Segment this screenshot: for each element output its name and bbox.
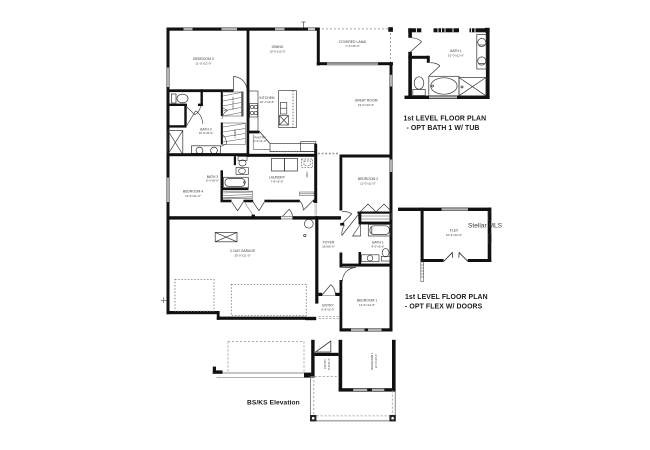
svg-text:BATH 1: BATH 1 [450, 49, 462, 53]
svg-text:16'0x5'-0": 16'0x5'-0" [322, 245, 335, 249]
svg-text:4'-0"x4'-0": 4'-0"x4'-0" [254, 139, 267, 143]
svg-text:7'-6"x5'-6": 7'-6"x5'-6" [271, 180, 284, 184]
svg-text:BEDROOM 3: BEDROOM 3 [193, 57, 213, 61]
svg-text:30'-0"x21'-0": 30'-0"x21'-0" [234, 254, 250, 258]
svg-text:DINING: DINING [272, 45, 284, 49]
svg-text:5'-0"x8'-0": 5'-0"x8'-0" [206, 179, 219, 183]
svg-text:BEDROOM 1: BEDROOM 1 [357, 299, 377, 303]
svg-text:3 CAR GARAGE: 3 CAR GARAGE [230, 249, 256, 253]
svg-text:6'-8"x5'-4": 6'-8"x5'-4" [327, 358, 331, 370]
svg-text:10'-6"x5'-0": 10'-6"x5'-0" [199, 131, 214, 135]
svg-text:ENTRY: ENTRY [323, 359, 327, 369]
svg-text:BEDROOM 1: BEDROOM 1 [370, 352, 374, 370]
svg-text:8'-0"x5'-0": 8'-0"x5'-0" [372, 245, 385, 249]
svg-text:11'-0"x11'-0": 11'-0"x11'-0" [185, 194, 201, 198]
svg-text:1st LEVEL FLOOR PLAN: 1st LEVEL FLOOR PLAN [404, 116, 487, 123]
svg-text:10'-0"x12'-0": 10'-0"x12'-0" [269, 50, 285, 54]
svg-text:LINEN: LINEN [233, 129, 237, 138]
svg-text:11'-0"x11'-0": 11'-0"x11'-0" [360, 182, 376, 186]
svg-text:- OPT BATH 1 W/ TUB: - OPT BATH 1 W/ TUB [407, 125, 480, 132]
svg-text:10'-0"x11'-6": 10'-0"x11'-6" [448, 54, 464, 58]
svg-text:REF: REF [305, 171, 309, 177]
svg-text:19'-0"x16'-0": 19'-0"x16'-0" [358, 103, 374, 107]
svg-text:- OPT FLEX W/ DOORS: - OPT FLEX W/ DOORS [405, 304, 483, 311]
svg-text:GREAT ROOM: GREAT ROOM [355, 99, 378, 103]
svg-text:12'-0"x14'-0": 12'-0"x14'-0" [374, 354, 378, 369]
svg-text:FLEX: FLEX [450, 229, 459, 233]
svg-text:1st LEVEL FLOOR PLAN: 1st LEVEL FLOOR PLAN [405, 294, 488, 301]
svg-text:BS/KS Elevation: BS/KS Elevation [247, 400, 300, 407]
svg-text:BEDROOM 4: BEDROOM 4 [183, 190, 203, 194]
svg-text:BEDROOM 2: BEDROOM 2 [358, 177, 378, 181]
svg-text:10'-6"x10'-0": 10'-6"x10'-0" [446, 233, 462, 237]
svg-text:7'-4"x16'-0": 7'-4"x16'-0" [345, 44, 360, 48]
svg-text:A/C CLST: A/C CLST [231, 96, 235, 109]
svg-text:10'-1"x9'-8": 10'-1"x9'-8" [260, 100, 275, 104]
svg-text:12'-0"x14'-0": 12'-0"x14'-0" [359, 303, 375, 307]
svg-text:Stellar MLS: Stellar MLS [468, 223, 503, 230]
svg-text:6'-8"x5'-0": 6'-8"x5'-0" [322, 308, 335, 312]
svg-text:11'-0"x12'-0": 11'-0"x12'-0" [196, 62, 212, 66]
